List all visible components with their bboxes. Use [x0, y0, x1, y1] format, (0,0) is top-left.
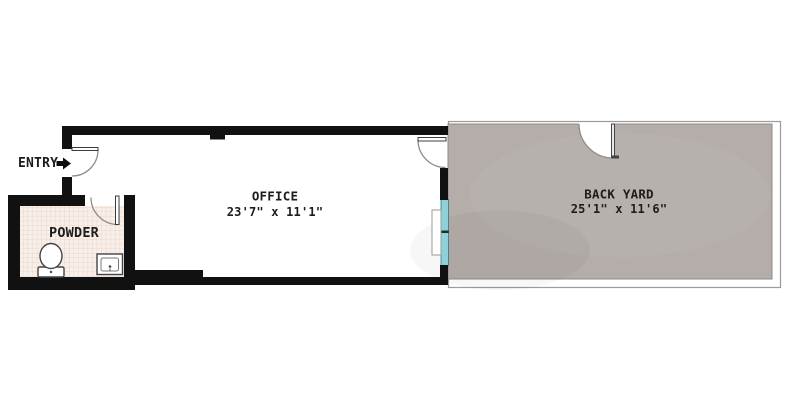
office-door-leaf: [418, 138, 446, 142]
entry-label: ENTRY: [18, 156, 58, 171]
wall-segment: [440, 168, 448, 200]
backyard-dimensions: 25'1" x 11'6": [571, 202, 668, 216]
office-backyard-door: [418, 138, 446, 168]
sink-faucet: [109, 265, 112, 268]
entry-arrow-icon: [57, 158, 72, 170]
wall-segment: [135, 270, 203, 285]
wall-segment: [8, 277, 135, 290]
backyard-room-label: BACK YARD: [584, 187, 654, 202]
office-room-label: OFFICE: [252, 189, 298, 204]
powder-door-leaf: [116, 196, 120, 225]
wall-segment: [62, 126, 72, 149]
toilet-flush: [50, 271, 52, 273]
wall-segment: [124, 195, 135, 290]
window-divider: [441, 231, 449, 234]
floor-plan: ENTRY POWDER OFFICE 23'7" x 11'1" BACK Y…: [0, 0, 800, 402]
powder-room-label: POWDER: [49, 225, 99, 241]
wall-segment: [8, 195, 20, 290]
gate-stop: [612, 156, 620, 159]
entry-door: [72, 148, 98, 177]
wall-segment: [210, 135, 225, 140]
entry-door-leaf: [72, 148, 98, 151]
entry-door-arc: [72, 150, 98, 176]
sink: [97, 254, 123, 275]
office-backyard-window: [441, 200, 449, 266]
floor-plan-drawing: [0, 0, 800, 402]
wall-segment: [440, 265, 448, 285]
gate-leaf: [612, 124, 615, 157]
toilet-bowl: [40, 244, 62, 269]
window-sill: [432, 210, 441, 255]
wall-segment: [203, 277, 448, 285]
wall-segment: [62, 126, 448, 135]
office-dimensions: 23'7" x 11'1": [227, 205, 324, 219]
toilet: [38, 244, 64, 278]
office-door-arc: [418, 140, 446, 168]
